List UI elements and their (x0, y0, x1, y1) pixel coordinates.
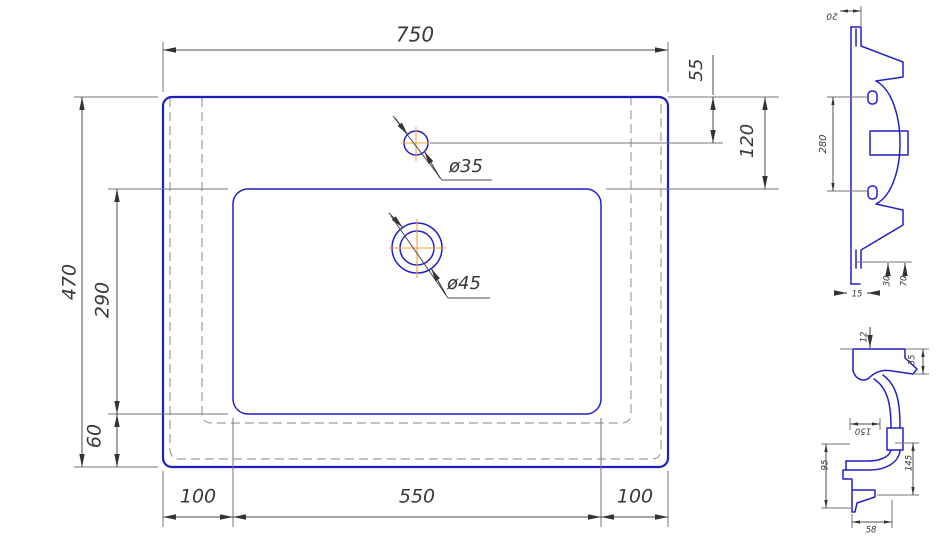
dim-text-right: 145 (905, 455, 915, 471)
dim-text-b: 70 (900, 276, 910, 287)
side-profile (851, 27, 908, 284)
label-faucet-hole: ø35 (448, 156, 483, 177)
dim-text-top: 12 (860, 332, 870, 343)
side-drain-boss (870, 131, 908, 155)
dim-text-a: 30 (883, 276, 893, 287)
dim-text-height: 470 (59, 264, 81, 300)
dim-text-right-margin: 100 (617, 486, 653, 508)
label-drain-hole: ø45 (446, 273, 481, 294)
cad-drawing: 750 55 120 470 290 60 100 550 100 ø35 ø4… (0, 0, 941, 541)
drain-center-mark (389, 219, 446, 278)
dim-text-basin-width: 550 (399, 486, 435, 508)
edge-section-view: 12 35 150 95 145 58 (821, 327, 930, 536)
dimension-lines (82, 50, 765, 517)
dim-text-basin-top: 120 (737, 124, 758, 158)
side-faucet-slot (868, 91, 877, 104)
edge-profile (843, 349, 917, 512)
dim-text-left-margin: 100 (180, 486, 216, 508)
dim-text-width: 150 (855, 426, 871, 436)
dim-text-width: 750 (396, 23, 434, 47)
dim-text-rim: 20 (826, 11, 838, 21)
dim-text-bottom: 58 (866, 526, 877, 536)
extension-lines (74, 42, 779, 527)
dim-text-front-gap: 60 (84, 424, 106, 448)
dim-text-left: 95 (821, 460, 831, 471)
dim-text-bowl-span: 280 (818, 134, 829, 153)
dim-text-basin-length: 290 (92, 282, 114, 318)
edge-overflow-box (887, 428, 903, 450)
side-section-view: 20 280 30 70 15 (818, 6, 912, 300)
dim-text-edge: 35 (908, 355, 918, 366)
dim-text-faucet-top: 55 (686, 59, 707, 82)
drawing-canvas: 750 55 120 470 290 60 100 550 100 ø35 ø4… (0, 0, 941, 541)
dim-text-lip: 15 (852, 290, 863, 300)
side-overflow-slot (868, 186, 877, 199)
plan-view: 750 55 120 470 290 60 100 550 100 ø35 ø4… (59, 23, 780, 528)
